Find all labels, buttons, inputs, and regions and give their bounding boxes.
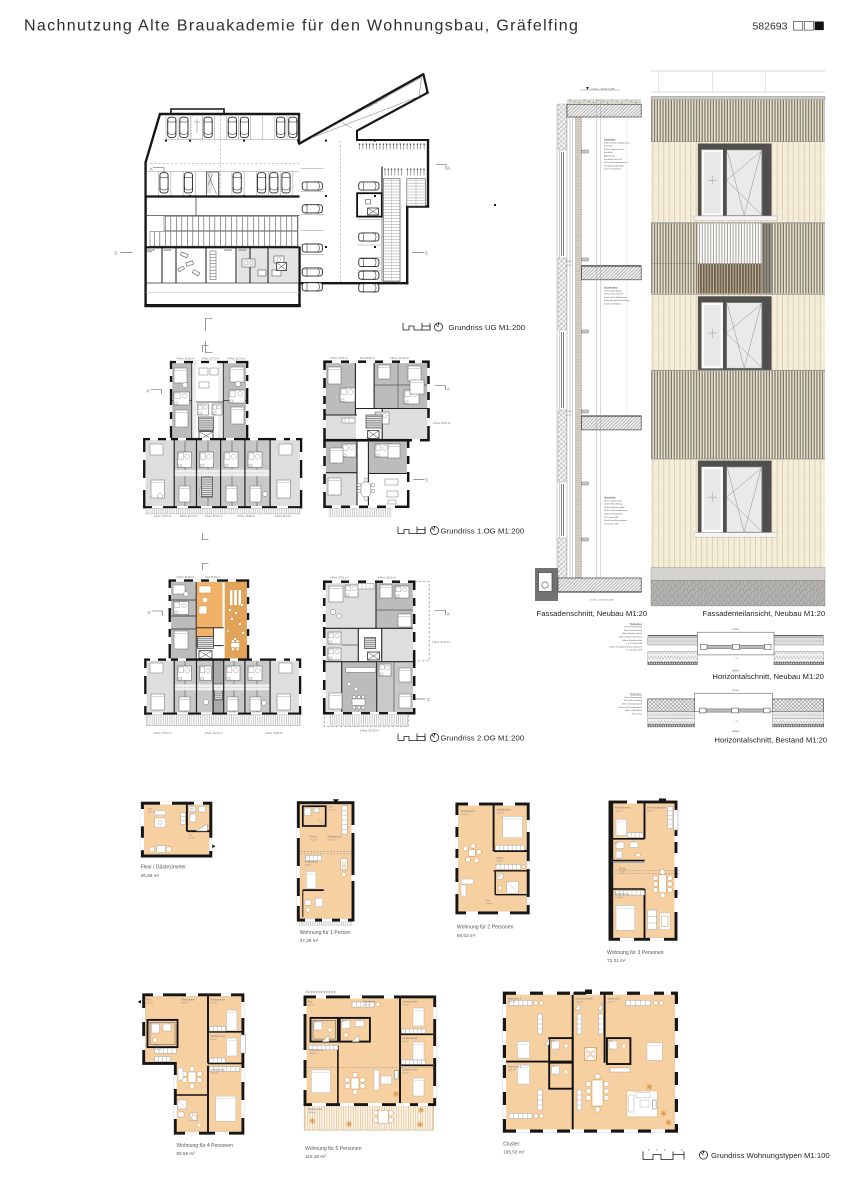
svg-text:24mm Hinterlüftung: 24mm Hinterlüftung [624, 629, 643, 632]
svg-text:24,2 m²: 24,2 m² [608, 1001, 616, 1004]
svg-text:100mm Extensivbegrünung: 100mm Extensivbegrünung [604, 141, 630, 144]
svg-text:Küche: Küche [619, 867, 626, 870]
svg-text:Flur: Flur [329, 806, 333, 809]
svg-text:6,1 m²: 6,1 m² [147, 1002, 153, 1005]
svg-text:Schlafzimmer: Schlafzimmer [497, 809, 512, 812]
svg-text:Wohn/Essbereich: Wohn/Essbereich [647, 807, 666, 810]
svg-text:Grundriss UG M1:200: Grundriss UG M1:200 [449, 323, 526, 332]
svg-text:9,2 m²: 9,2 m² [403, 1072, 409, 1075]
svg-text:Kinderzimmer: Kinderzimmer [403, 1001, 418, 1004]
svg-text:24mm Hinterlüftung: 24mm Hinterlüftung [604, 503, 623, 506]
svg-text:21,2 m²: 21,2 m² [461, 813, 469, 816]
svg-text:Schlafnische: Schlafnische [305, 861, 319, 864]
svg-text:9,2 m²: 9,2 m² [403, 1004, 409, 1007]
svg-text:4 Pers. 92,0 m²: 4 Pers. 92,0 m² [275, 515, 292, 518]
svg-text:24mm Hinterlüftung: 24mm Hinterlüftung [624, 699, 643, 702]
svg-text:59,53 m²: 59,53 m² [457, 933, 476, 938]
svg-text:Nachnutzung Alte Brauakademie: Nachnutzung Alte Brauakademie für den Wo… [24, 18, 579, 35]
svg-text:Flur: Flur [147, 999, 151, 1002]
svg-text:16mm Gipsfaserplatte: 16mm Gipsfaserplatte [622, 632, 643, 635]
svg-text:20mm Holzfassade: 20mm Holzfassade [624, 697, 643, 699]
svg-text:Wohnung für 1 Person: Wohnung für 1 Person [300, 930, 351, 936]
svg-text:Abst.: Abst. [305, 805, 310, 808]
svg-text:40mm Installationsebene gedämm: 40mm Installationsebene gedämmt [610, 645, 643, 648]
svg-text:C: C [426, 478, 429, 483]
svg-text:Apartment 3: Apartment 3 [508, 1066, 522, 1069]
svg-text:240mm Wärmedämmung: 240mm Wärmedämmung [604, 161, 628, 164]
svg-text:1.OG: 1.OG [566, 411, 572, 413]
svg-text:4 Pers. 91,66 m²: 4 Pers. 91,66 m² [177, 357, 195, 360]
svg-text:16mm Gipsfaserplatte: 16mm Gipsfaserplatte [604, 506, 625, 509]
svg-text:65mm Zementestrich: 65mm Zementestrich [604, 293, 624, 296]
svg-text:7,8 m²: 7,8 m² [619, 870, 625, 873]
svg-text:24,2 m²: 24,2 m² [508, 1069, 516, 1072]
svg-text:Kinderzimmer: Kinderzimmer [403, 1069, 418, 1072]
svg-text:Wohnung für 4 Personen: Wohnung für 4 Personen [176, 1143, 233, 1149]
svg-text:Wohnzimmer: Wohnzimmer [461, 810, 475, 813]
svg-text:Küche: Küche [311, 836, 318, 839]
svg-text:11,2 m²: 11,2 m² [615, 810, 623, 813]
svg-text:9,2 m²: 9,2 m² [211, 1002, 217, 1005]
svg-text:12,9 m²: 12,9 m² [497, 812, 505, 815]
svg-text:4 Pers. 107,63 m²: 4 Pers. 107,63 m² [390, 357, 409, 360]
svg-text:90,56 m²: 90,56 m² [176, 1151, 195, 1156]
svg-text:2.OG: 2.OG [566, 261, 572, 263]
svg-text:9,2 m²: 9,2 m² [308, 1004, 314, 1007]
svg-text:365mm Stahlbeton: 365mm Stahlbeton [625, 709, 643, 712]
svg-text:Wohnküche: Wohnküche [363, 1001, 376, 1004]
svg-text:4 Pers. 81,76 m²: 4 Pers. 81,76 m² [228, 357, 246, 360]
svg-text:Abst.: Abst. [342, 1020, 347, 1023]
svg-text:Flex 55,53 m²: Flex 55,53 m² [206, 576, 221, 579]
svg-text:Fassadenteilansicht, Neubau M: Fassadenteilansicht, Neubau M1:20 [703, 609, 826, 618]
svg-text:Cluster: Cluster [503, 1141, 519, 1147]
svg-text:5,1 m²: 5,1 m² [329, 808, 335, 811]
svg-text:Schlafzimmer: Schlafzimmer [615, 893, 630, 896]
svg-text:2x12,5mm GKF: 2x12,5mm GKF [604, 517, 619, 519]
svg-text:Flur: Flur [308, 1001, 312, 1004]
svg-text:28,2 m²: 28,2 m² [308, 1111, 316, 1114]
svg-text:A: A [147, 389, 150, 394]
svg-text:3 Pers. 67,07 m²: 3 Pers. 67,07 m² [205, 515, 223, 518]
svg-text:Wohnung für 3 Personen: Wohnung für 3 Personen [607, 950, 664, 956]
svg-text:26,69 m²: 26,69 m² [141, 873, 160, 878]
svg-text:außen: außen [732, 729, 740, 733]
svg-text:+6,26: +6,26 [566, 265, 572, 267]
svg-text:200mm Stahlbeton: 200mm Stahlbeton [604, 168, 622, 171]
svg-text:200mm Stahlbeton: 200mm Stahlbeton [604, 303, 622, 306]
svg-text:26,0 m²: 26,0 m² [328, 839, 336, 842]
svg-text:4,8 m²: 4,8 m² [305, 864, 311, 867]
svg-text:Wohnbereich: Wohnbereich [328, 836, 343, 839]
svg-text:582693: 582693 [752, 21, 787, 33]
svg-text:26,0 m²: 26,0 m² [647, 810, 655, 813]
svg-text:43,9 m²: 43,9 m² [363, 1004, 371, 1007]
svg-text:4,6 m²: 4,6 m² [486, 902, 492, 905]
svg-text:24,2 m²: 24,2 m² [508, 1001, 516, 1004]
svg-text:+22,76 = +546,26 m üNN: +22,76 = +546,26 m üNN [590, 89, 615, 91]
svg-text:240mm Holzständer,: 240mm Holzständer, [604, 513, 623, 516]
svg-text:26,3 m²: 26,3 m² [181, 1002, 189, 1005]
svg-text:innen: innen [733, 627, 740, 631]
svg-text:5 Pers. 147,06 m²: 5 Pers. 147,06 m² [360, 730, 379, 733]
svg-text:A: A [447, 612, 450, 617]
svg-text:195,50 m²: 195,50 m² [503, 1149, 525, 1154]
svg-text:5,4 m²: 5,4 m² [497, 860, 503, 863]
svg-text:Küche: Küche [497, 857, 504, 860]
svg-text:Küche: Küche [155, 1045, 162, 1048]
svg-text:2 Pers. 70,70 m²: 2 Pers. 70,70 m² [154, 515, 172, 518]
svg-text:Grundriss 2.OG M1:200: Grundriss 2.OG M1:200 [441, 734, 525, 743]
svg-text:20mm Putz: 20mm Putz [631, 712, 642, 715]
svg-text:Flexi / Gästezimmer: Flexi / Gästezimmer [141, 864, 187, 870]
svg-text:2 x 12,5mm GKF: 2 x 12,5mm GKF [626, 650, 642, 652]
svg-text:81,2 m²: 81,2 m² [576, 1001, 584, 1004]
svg-text:3 Pers. 91,31 m²: 3 Pers. 91,31 m² [432, 641, 450, 644]
svg-text:5,4 m²: 5,4 m² [311, 839, 317, 842]
svg-text:15,4 m²: 15,4 m² [211, 1072, 219, 1075]
svg-text:Flur: Flur [189, 834, 193, 837]
svg-text:2 Pers. 70,70 m²: 2 Pers. 70,70 m² [154, 732, 172, 735]
svg-text:2 x 12,5mm OSB: 2 x 12,5mm OSB [626, 643, 642, 645]
svg-text:Schlafzimmer: Schlafzimmer [211, 1069, 226, 1072]
svg-text:6,0 m²: 6,0 m² [189, 836, 195, 839]
svg-text:Grundriss 1.OG M1:200: Grundriss 1.OG M1:200 [441, 527, 525, 536]
svg-text:17,6 m²: 17,6 m² [148, 810, 156, 813]
svg-text:A: A [447, 387, 450, 392]
svg-text:240mm Wärmedämmung: 240mm Wärmedämmung [619, 636, 643, 639]
svg-text:40mm Ausgleichsschüttung: 40mm Ausgleichsschüttung [604, 299, 630, 302]
svg-text:Dampfsperre/Notabd.: Dampfsperre/Notabd. [604, 164, 624, 167]
svg-text:Wng.: Wng. [148, 809, 153, 811]
svg-text:2x12,5mm GKF: 2x12,5mm GKF [604, 523, 619, 525]
svg-text:Wohnung für 2 Personen: Wohnung für 2 Personen [457, 924, 514, 930]
svg-text:+3,13: +3,13 [566, 415, 572, 417]
svg-text:4 Pers. 95,31 m²: 4 Pers. 95,31 m² [378, 576, 396, 579]
svg-text:47,29 m²: 47,29 m² [300, 938, 319, 943]
svg-text:2 Pers. 76,66 m²: 2 Pers. 76,66 m² [237, 515, 255, 518]
svg-text:Flex 55,53 m²: Flex 55,53 m² [360, 357, 375, 360]
svg-text:Schlafzimmer: Schlafzimmer [309, 1049, 324, 1052]
svg-text:2 Pers. 81,66 m²: 2 Pers. 81,66 m² [177, 576, 195, 579]
svg-text:4 Pers. 97,51 m²: 4 Pers. 97,51 m² [330, 357, 348, 360]
svg-text:Horizontalschnitt, Neubau M1:: Horizontalschnitt, Neubau M1:20 [712, 672, 824, 681]
svg-text:Filtervlies: Filtervlies [604, 145, 613, 148]
svg-text:A: A [148, 610, 151, 615]
svg-text:3 Pers. 67,73 m²: 3 Pers. 67,73 m² [202, 357, 220, 360]
svg-text:Flur: Flur [486, 899, 490, 902]
svg-text:Apartment 2: Apartment 2 [608, 998, 622, 1001]
svg-text:Wohnung für 5 Personen: Wohnung für 5 Personen [305, 1146, 362, 1152]
svg-text:innen: innen [733, 688, 740, 692]
svg-text:5,4 m²: 5,4 m² [155, 1048, 161, 1051]
svg-text:Kinderzimmer: Kinderzimmer [403, 1037, 418, 1040]
svg-text:±0,00 = +523,50 m üNN: ±0,00 = +523,50 m üNN [590, 600, 614, 602]
svg-text:Abdichtung,: Abdichtung, [604, 155, 615, 158]
svg-text:Fassadenschnitt, Neubau M1:20: Fassadenschnitt, Neubau M1:20 [537, 609, 648, 618]
svg-text:16mm Gipsfaserplatte: 16mm Gipsfaserplatte [622, 703, 643, 706]
svg-text:2 Pers. 60,70 m²: 2 Pers. 60,70 m² [205, 732, 223, 735]
svg-text:14,9 m²: 14,9 m² [309, 1052, 317, 1055]
svg-text:Apartment 1: Apartment 1 [508, 998, 522, 1001]
svg-text:240mm Wärmedämmung: 240mm Wärmedämmung [619, 706, 643, 709]
svg-text:A: A [150, 167, 153, 172]
svg-text:9,2 m²: 9,2 m² [211, 1038, 217, 1041]
svg-text:24mm Holzfassade: 24mm Holzfassade [624, 627, 643, 629]
svg-text:WC: WC [498, 876, 502, 878]
svg-text:60mm Substratschicht: 60mm Substratschicht [604, 148, 625, 151]
svg-text:20mm Trittschalldämmpl.: 20mm Trittschalldämmpl. [604, 296, 628, 299]
svg-text:Wohnzimmer: Wohnzimmer [181, 999, 195, 1002]
svg-text:C: C [427, 697, 430, 702]
svg-text:17,6 m²: 17,6 m² [615, 896, 623, 899]
svg-text:wurzelfest nach FLL: wurzelfest nach FLL [604, 158, 623, 161]
svg-text:Kinderzimmer: Kinderzimmer [211, 999, 226, 1002]
svg-text:9,2 m²: 9,2 m² [403, 1040, 409, 1043]
svg-text:40mm Installationsebene: 40mm Installationsebene [604, 519, 628, 522]
svg-text:Filtervlies: Filtervlies [604, 151, 613, 154]
svg-text:2 Pers. 79,66 m²: 2 Pers. 79,66 m² [265, 732, 283, 735]
svg-text:72,31 m²: 72,31 m² [607, 958, 626, 963]
svg-text:119,48 m²: 119,48 m² [305, 1154, 326, 1159]
svg-text:Gemeinschaftsb.: Gemeinschaftsb. [576, 998, 594, 1001]
svg-text:240mm Wärmedämmung: 240mm Wärmedämmung [604, 509, 628, 512]
svg-text:A: A [447, 166, 450, 171]
svg-text:200mm Brettsperrholz: 200mm Brettsperrholz [622, 639, 642, 642]
svg-text:Horizontalschnitt, Bestand M1:: Horizontalschnitt, Bestand M1:20 [714, 735, 827, 744]
svg-text:Kinderzimmer: Kinderzimmer [615, 807, 630, 810]
svg-text:Kinderzimmer: Kinderzimmer [211, 1035, 226, 1038]
svg-text:24mm Holzfassade: 24mm Holzfassade [604, 500, 623, 502]
svg-text:2 Pers. 51,51 m²: 2 Pers. 51,51 m² [433, 422, 451, 425]
svg-text:3 Pers. 67,07 m²: 3 Pers. 67,07 m² [180, 515, 198, 518]
svg-text:15mm Bodenbelag: 15mm Bodenbelag [604, 290, 622, 292]
svg-text:4 Pers. 97,51 m²: 4 Pers. 97,51 m² [330, 576, 348, 579]
svg-text:Grundriss Wohnungstypen M1:100: Grundriss Wohnungstypen M1:100 [711, 1151, 830, 1160]
svg-text:Dachterrasse: Dachterrasse [308, 1108, 323, 1111]
